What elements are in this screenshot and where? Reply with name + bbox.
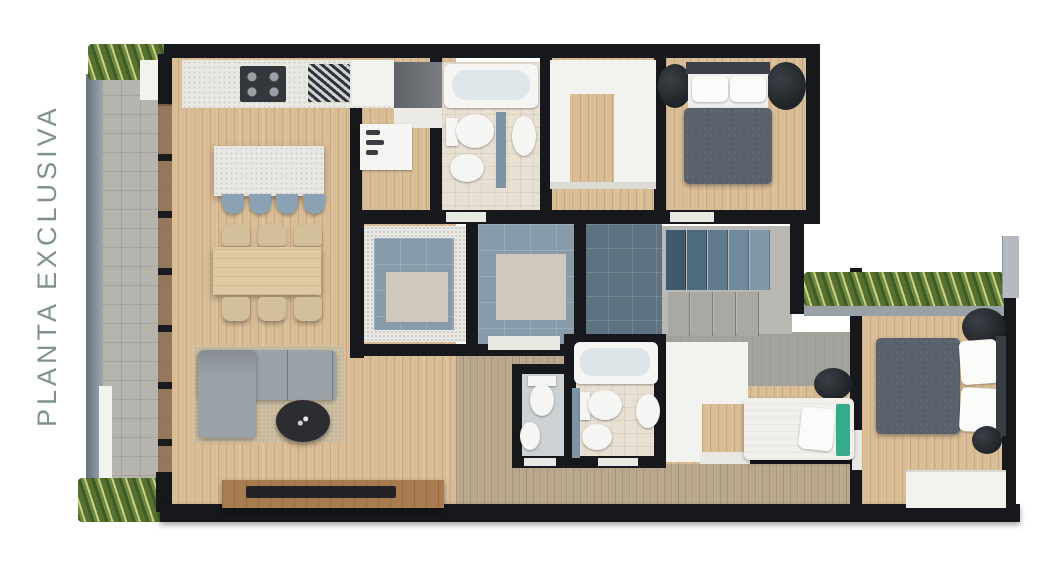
wall-elevator-hall: [466, 218, 478, 350]
right-wall-panel: [1002, 236, 1019, 298]
bed1-pillow-left: [692, 76, 728, 102]
partition-bath3: [572, 388, 580, 458]
planter-right: [804, 272, 1004, 306]
stair-tread-3: [708, 230, 728, 290]
dish-rack-icon: [308, 64, 350, 102]
bed1-duvet: [684, 108, 772, 184]
dining-chair-b1: [222, 297, 250, 321]
glass-wall-left: [158, 104, 172, 474]
kitchen-island: [214, 146, 324, 196]
dining-chair-b3: [294, 297, 322, 321]
bed1-pillow-right: [730, 76, 766, 102]
wall-top: [164, 44, 820, 58]
hall-threshold: [488, 336, 560, 350]
wall-bath2-left: [512, 364, 522, 468]
wall-right-top-block: [806, 44, 820, 218]
laundry-faucet-3: [366, 150, 378, 155]
bathtub-3-basin: [580, 348, 650, 376]
toilet-2-bowl: [530, 384, 554, 416]
bed1-headboard: [686, 62, 770, 74]
coffee-table: [276, 400, 330, 442]
laundry-faucet-2: [366, 140, 384, 145]
dining-chair-t1: [222, 224, 250, 246]
bed2-pillow-top: [959, 339, 1000, 386]
dining-chair-b2: [258, 297, 286, 321]
door-bedroom1: [670, 212, 714, 222]
closet-block-b: [664, 404, 702, 462]
bidet-1: [450, 154, 484, 182]
door-bathroom1: [446, 212, 486, 222]
bed2-pillow-bottom: [959, 387, 999, 433]
door-bedroom3: [700, 452, 750, 464]
bed3-pillow: [798, 406, 836, 451]
stove-icon: [240, 66, 286, 102]
bathtub-1-basin: [452, 70, 530, 100]
stair-tread-2: [687, 230, 707, 290]
door-bathroom2: [524, 458, 556, 466]
partition-bath1: [496, 112, 506, 188]
hall-rug: [496, 254, 566, 320]
wall-hall-corridor: [574, 218, 586, 346]
bed3-headboard-green: [836, 404, 850, 456]
beanbag-bedroom3: [814, 368, 852, 400]
stair-tread-1: [666, 230, 686, 290]
washbasin-1: [512, 116, 536, 156]
stair-landing-1: [668, 292, 690, 336]
wardrobe-bedroom2: [906, 470, 1006, 508]
toilet-3-bowl: [588, 390, 622, 420]
wardrobe-u-right: [614, 60, 656, 182]
wall-elevator-left: [350, 218, 364, 358]
stair-tread-5: [750, 230, 770, 290]
wall-stairs-right: [790, 214, 804, 314]
stair-landing-2: [691, 292, 713, 336]
bottom-corridor-floor: [566, 464, 852, 508]
toilet-1-bowl: [456, 114, 494, 148]
tv-icon: [246, 486, 396, 498]
dining-table: [213, 247, 321, 295]
wall-bath2-top: [512, 364, 570, 374]
laundry-upper-cabinet: [352, 60, 394, 106]
fridge-icon: [394, 62, 442, 108]
bed2-duvet: [876, 338, 960, 434]
laundry-faucet-1: [366, 130, 380, 135]
stair-tread-4: [729, 230, 749, 290]
sofa-chaise: [198, 350, 256, 438]
floor-plan: [0, 0, 1056, 580]
washbasin-3: [636, 394, 660, 428]
stool-bedroom2: [972, 426, 1002, 454]
wardrobe-u-left: [550, 60, 570, 182]
stair-landing-4: [737, 292, 759, 336]
nightstand-plant-right: [766, 62, 806, 110]
terrace-white-slab: [99, 386, 112, 478]
bed2-headboard: [996, 336, 1006, 436]
washbasin-2: [520, 422, 540, 450]
stair-landing-3: [714, 292, 736, 336]
door-bathroom3: [598, 458, 638, 466]
corridor-tile: [584, 224, 662, 344]
dining-chair-t3: [294, 224, 322, 246]
elevator-pad: [386, 272, 448, 322]
dining-chair-t2: [258, 224, 286, 246]
bidet-3: [582, 424, 612, 450]
wall-left-top: [158, 54, 172, 106]
closet-block-a: [664, 342, 748, 404]
wardrobe-ledge: [550, 182, 656, 189]
